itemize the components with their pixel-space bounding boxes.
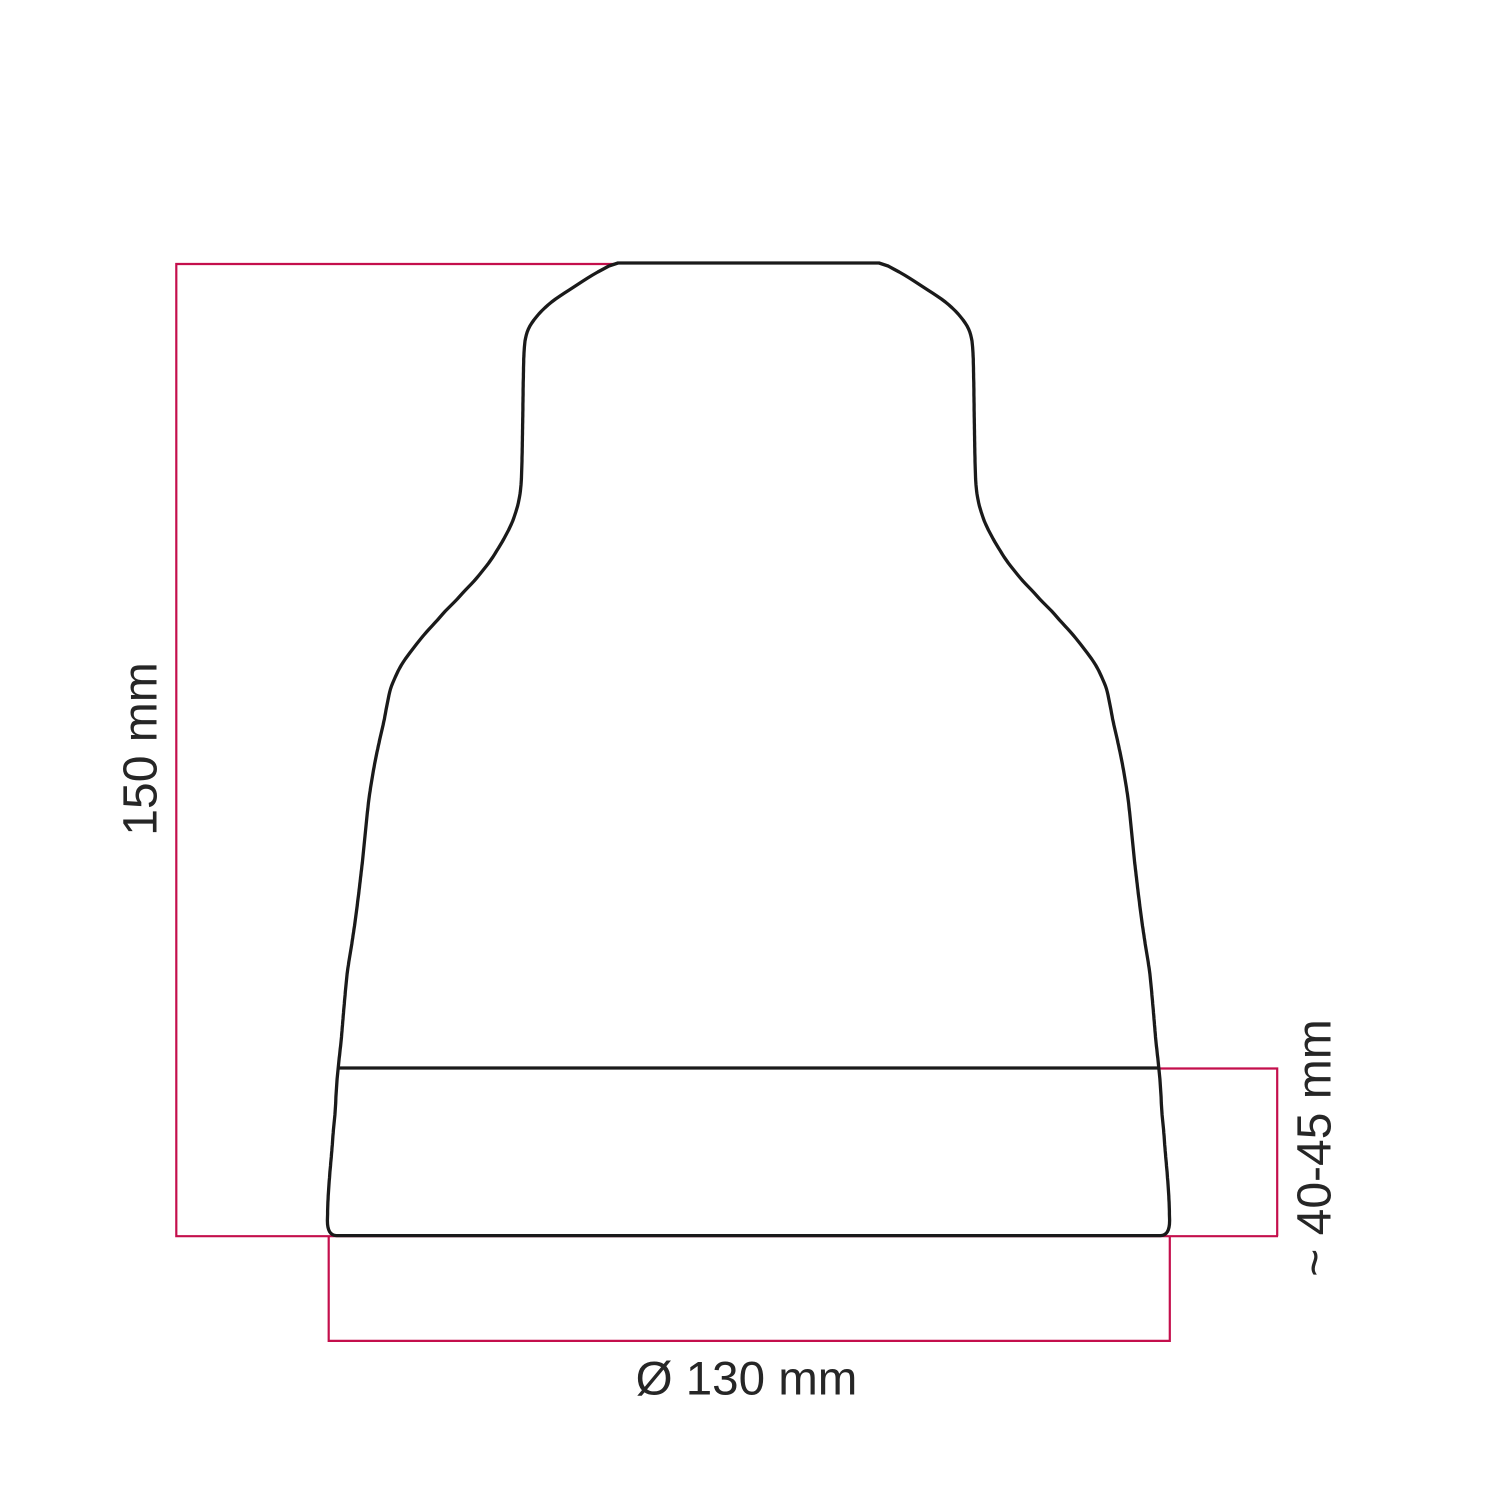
svg-text:150 mm: 150 mm [115,662,168,835]
svg-text:~ 40-45 mm: ~ 40-45 mm [1289,1019,1342,1276]
svg-text:Ø 130 mm: Ø 130 mm [636,1353,858,1406]
